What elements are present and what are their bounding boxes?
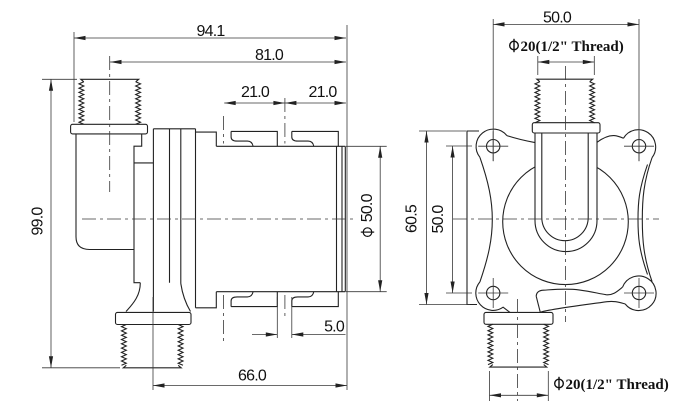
svg-text:50.0: 50.0 [543,10,572,27]
svg-text:5.0: 5.0 [324,319,345,336]
svg-text:50.0: 50.0 [359,193,376,222]
svg-text:66.0: 66.0 [238,368,267,385]
svg-text:99.0: 99.0 [30,207,47,236]
svg-text:60.5: 60.5 [404,204,421,233]
svg-text:20(1/2" Thread): 20(1/2" Thread) [566,377,669,393]
svg-text:94.1: 94.1 [197,23,226,40]
svg-text:21.0: 21.0 [241,84,270,101]
svg-text:20(1/2" Thread): 20(1/2" Thread) [521,39,624,55]
svg-text:81.0: 81.0 [255,47,284,64]
svg-text:21.0: 21.0 [309,84,338,101]
svg-text:50.0: 50.0 [430,205,447,234]
